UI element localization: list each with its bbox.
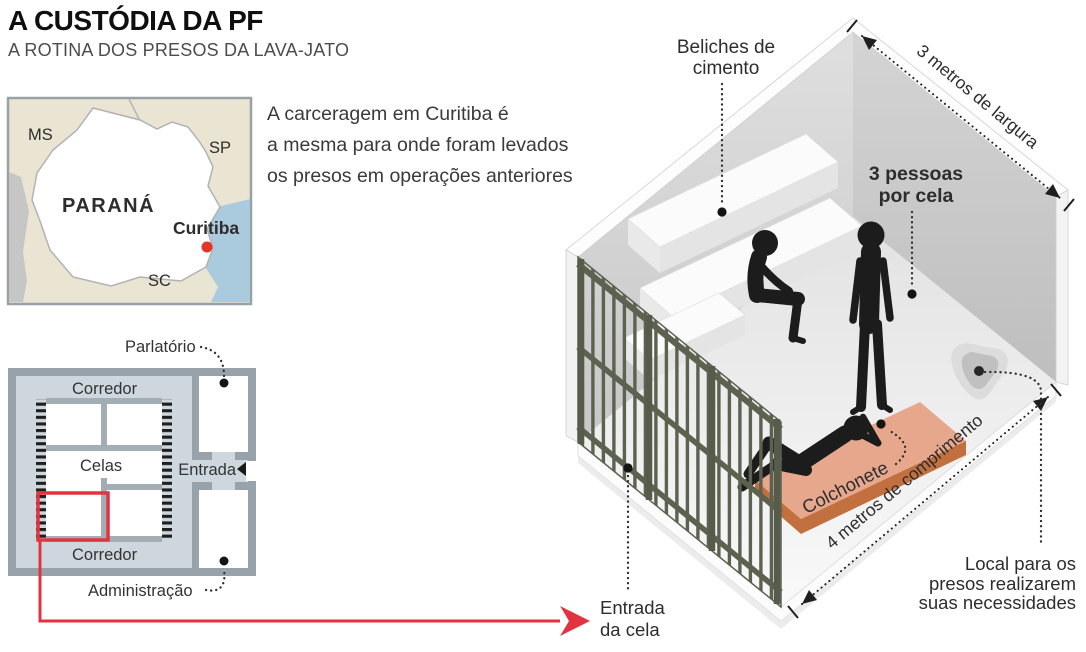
map-label-parana: PARANÁ — [62, 194, 155, 217]
plan-label-celas: Celas — [80, 457, 122, 475]
cell-bars-hatch-right — [162, 399, 172, 541]
cell-wall — [46, 398, 162, 404]
intro-line-1: A carceragem em Curitiba é — [267, 99, 573, 130]
left-wall-edge — [566, 250, 578, 442]
wall-segment — [235, 452, 248, 460]
label-beliches-line2: cimento — [693, 58, 760, 79]
label-local-line1: Local para os — [965, 553, 1076, 574]
curitiba-dot-icon — [202, 242, 213, 253]
cell-3d-illustration: Beliches de cimento 3 pessoas por cela 3… — [566, 18, 1076, 640]
infographic-canvas: MS SP SC PARANÁ Curitiba Corredor Corred… — [0, 0, 1086, 652]
infographic-graphics: MS SP SC PARANÁ Curitiba Corredor Corred… — [0, 0, 1086, 652]
standing-person-leg — [861, 324, 865, 407]
label-beliches-line1: Beliches de — [677, 37, 775, 58]
parana-map: MS SP SC PARANÁ Curitiba — [8, 98, 251, 304]
map-label-sp: SP — [209, 139, 231, 157]
standing-person-torso — [869, 252, 871, 324]
sitting-person-shin — [793, 299, 798, 338]
intro-text: A carceragem em Curitiba é a mesma para … — [267, 99, 573, 192]
entrada-cela-callout-dot — [623, 463, 632, 472]
standing-person-foot — [853, 407, 861, 412]
cell-wall — [101, 404, 107, 445]
intro-line-2: a mesma para onde foram levados — [267, 130, 573, 161]
plan-label-entrada: Entrada — [178, 461, 237, 479]
standing-person-leg — [877, 324, 882, 405]
page-subtitle: A ROTINA DOS PRESOS DA LAVA-JATO — [8, 40, 349, 61]
cell-wall — [107, 484, 162, 490]
wall-segment — [192, 376, 199, 460]
cell-wall — [101, 478, 107, 536]
colchonete-callout-dot — [876, 419, 885, 428]
right-wall-edge — [1056, 190, 1068, 385]
plan-label-parlatorio: Parlatório — [125, 338, 196, 356]
plan-label-corredor-bottom: Corredor — [72, 546, 138, 564]
label-local-line3: suas necessidades — [919, 592, 1076, 613]
sitting-person-thigh — [757, 295, 798, 299]
label-pessoas-line2: por cela — [879, 185, 954, 207]
label-local-line2: presos realizarem — [929, 573, 1076, 594]
label-entrada-cela-line2: da cela — [600, 619, 660, 640]
wall-segment — [192, 483, 199, 568]
label-pessoas-line1: 3 pessoas — [869, 163, 963, 185]
page-title: A CUSTÓDIA DA PF — [8, 5, 263, 37]
administracao-callout-dot — [220, 557, 229, 566]
pessoas-callout-dot — [907, 289, 916, 298]
plan-label-corredor-top: Corredor — [72, 380, 138, 398]
map-label-ms: MS — [28, 126, 53, 144]
label-entrada-cela-line1: Entrada — [600, 597, 666, 618]
wall-segment — [192, 482, 212, 490]
parlatorio-callout-dot — [220, 379, 229, 388]
toilet-callout-dot — [974, 366, 984, 376]
map-label-curitiba: Curitiba — [173, 218, 239, 238]
administracao-room — [199, 490, 248, 568]
beliches-callout-dot — [717, 207, 726, 216]
wall-segment — [235, 482, 248, 490]
prison-floorplan: Corredor Corredor Celas Entrada Parlatór… — [8, 338, 590, 636]
cell-wall — [46, 445, 162, 451]
entrance-gap — [246, 461, 258, 481]
wall-segment — [192, 452, 212, 460]
map-label-sc: SC — [148, 272, 171, 290]
plan-label-administracao: Administração — [88, 582, 193, 600]
sitting-person-foot — [793, 338, 803, 341]
intro-line-3: os presos em operações anteriores — [267, 161, 573, 192]
standing-person-foot — [882, 405, 890, 410]
red-arrow-icon — [560, 606, 590, 636]
